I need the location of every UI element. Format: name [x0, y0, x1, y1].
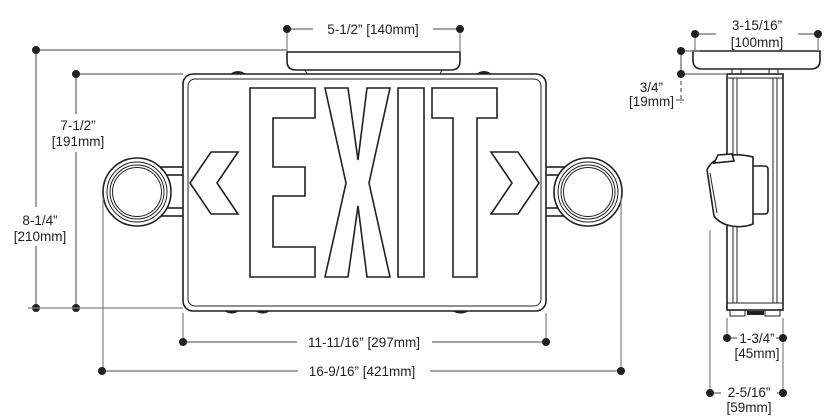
letter-E: [250, 88, 315, 277]
front-canopy: [287, 52, 460, 70]
side-lamp-slot: [714, 154, 734, 163]
dim-front-canopy-width: 5-1/2” [140mm]: [283, 22, 464, 51]
dim-label-overall-width: 16-9/16” [421mm]: [309, 364, 416, 379]
dim-label-housing-depth-in: 1-3/4”: [739, 331, 774, 346]
dim-side-canopy-depth: 3-15/16” [100mm]: [691, 18, 822, 51]
top-bump-right: [476, 71, 492, 74]
front-view: [103, 52, 622, 314]
dim-label-canopy-depth-in: 3-15/16”: [732, 18, 782, 33]
dim-label-canopy-offset-in: 3/4”: [640, 80, 663, 95]
right-lamp-head: [554, 158, 622, 226]
exit-sign-dimension-drawing: 5-1/2” [140mm] 8-1/4” [210mm] 7-1/2” [19…: [0, 0, 829, 419]
dim-label-housing-depth-mm: [45mm]: [734, 346, 779, 361]
side-canopy: [693, 51, 820, 69]
side-view: [693, 51, 820, 316]
dim-label-sign-width: 11-11/16” [297mm]: [308, 335, 420, 350]
dim-label-overall-depth-mm: [59mm]: [726, 400, 771, 415]
dim-housing-depth: 1-3/4” [45mm]: [723, 318, 787, 393]
bottom-bump-1: [224, 311, 239, 314]
side-foot-right: [765, 310, 780, 316]
dim-label-sign-height-mm: [191mm]: [52, 134, 105, 149]
dim-sign-width: 11-11/16” [297mm]: [179, 313, 550, 350]
bottom-bump-2: [255, 311, 270, 314]
dim-label-canopy-width: 5-1/2” [140mm]: [327, 22, 419, 37]
side-foot-mark: [747, 311, 764, 315]
dim-label-canopy-offset-mm: [19mm]: [629, 94, 674, 109]
letter-I: [398, 88, 424, 277]
top-bump-left: [230, 71, 246, 74]
left-lamp-head: [103, 158, 171, 226]
bottom-bump-3: [452, 311, 469, 314]
dim-label-overall-height-mm: [210mm]: [14, 229, 67, 244]
drawing-svg: 5-1/2” [140mm] 8-1/4” [210mm] 7-1/2” [19…: [0, 0, 829, 419]
side-lamp-dome: [707, 155, 753, 227]
dim-label-canopy-depth-mm: [100mm]: [731, 35, 784, 50]
dim-label-sign-height-in: 7-1/2”: [60, 118, 95, 133]
side-foot-left: [730, 310, 745, 316]
dim-label-overall-height-in: 8-1/4”: [22, 213, 57, 228]
dim-label-overall-depth-in: 2-5/16”: [728, 385, 771, 400]
